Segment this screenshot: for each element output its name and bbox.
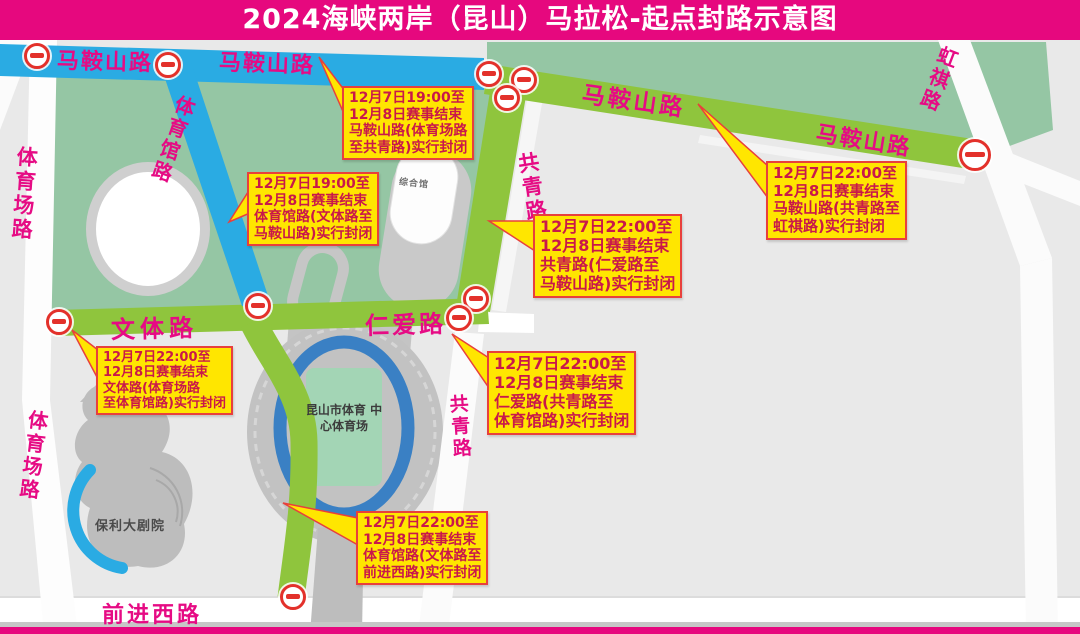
stadium-label-line1: 昆山市体育 (306, 403, 366, 417)
callout-line: 至体育馆路)实行封闭 (103, 396, 226, 411)
no-entry-icon (446, 305, 472, 331)
callout-line: 12月8日赛事结束 (103, 365, 226, 380)
callout-line: 12月7日19:00至 (254, 176, 372, 193)
callout-line: 12月8日赛事结束 (773, 183, 900, 201)
callout-line: 12月7日22:00至 (363, 515, 481, 532)
no-entry-icon (959, 139, 991, 171)
label-mashan-1: 马鞍山路 (57, 43, 154, 78)
stadium-label: 昆山市体育 中心体育场 (300, 403, 388, 434)
callout-line: 体育馆路)实行封闭 (494, 412, 629, 431)
callout-line: 前进西路)实行封闭 (363, 565, 481, 582)
callout-line: 虹祺路)实行封闭 (773, 218, 900, 236)
label-wenti: 文体路 (111, 308, 199, 345)
callout-mashan-west: 12月7日19:00至 12月8日赛事结束 马鞍山路(体育场路 至共青路)实行封… (342, 86, 474, 160)
callout-line: 体育馆路(文体路至 (363, 548, 481, 565)
page-title: 2024海峡两岸（昆山）马拉松-起点封路示意图 (242, 4, 837, 35)
callout-line: 马鞍山路(共青路至 (773, 200, 900, 218)
no-entry-icon (245, 293, 271, 319)
label-mashan-2: 马鞍山路 (218, 44, 315, 79)
callout-wenti: 12月7日22:00至 12月8日赛事结束 文体路(体育场路 至体育馆路)实行封… (96, 346, 233, 415)
no-entry-icon (24, 43, 50, 69)
callout-mashan-east: 12月7日22:00至 12月8日赛事结束 马鞍山路(共青路至 虹祺路)实行封闭 (766, 161, 907, 240)
label-qianjinxi: 前进西路 (102, 597, 202, 629)
callout-tiyuguan-south: 12月7日22:00至 12月8日赛事结束 体育馆路(文体路至 前进西路)实行封… (356, 511, 488, 585)
callout-line: 12月7日22:00至 (494, 355, 629, 374)
callout-tiyuguan-north: 12月7日19:00至 12月8日赛事结束 体育馆路(文体路至 马鞍山路)实行封… (247, 172, 379, 246)
callout-gongqing: 12月7日22:00至 12月8日赛事结束 共青路(仁爱路至 马鞍山路)实行封闭 (533, 214, 682, 298)
road-hongqi-south (1020, 258, 1058, 634)
callout-line: 马鞍山路)实行封闭 (254, 226, 372, 243)
park-oval-plaza (91, 167, 205, 291)
no-entry-icon (476, 61, 502, 87)
callout-line: 体育馆路(文体路至 (254, 209, 372, 226)
callout-line: 12月8日赛事结束 (349, 107, 467, 124)
callout-line: 12月7日22:00至 (540, 218, 675, 237)
callout-line: 马鞍山路(体育场路 (349, 123, 467, 140)
title-banner: 2024海峡两岸（昆山）马拉松-起点封路示意图 (0, 0, 1080, 40)
callout-line: 文体路(体育场路 (103, 381, 226, 396)
callout-line: 12月7日22:00至 (103, 350, 226, 365)
callout-line: 共青路(仁爱路至 (540, 256, 675, 275)
callout-line: 12月7日22:00至 (773, 165, 900, 183)
callout-line: 12月8日赛事结束 (540, 237, 675, 256)
no-entry-icon (280, 584, 306, 610)
road-closure-map: 2024海峡两岸（昆山）马拉松-起点封路示意图 马鞍山路 马鞍山路 马鞍山路 马… (0, 0, 1080, 634)
callout-line: 仁爱路(共青路至 (494, 393, 629, 412)
callout-line: 至共青路)实行封闭 (349, 140, 467, 157)
no-entry-icon (46, 309, 72, 335)
callout-line: 马鞍山路)实行封闭 (540, 275, 675, 294)
callout-line: 12月8日赛事结束 (494, 374, 629, 393)
no-entry-icon (155, 52, 181, 78)
callout-line: 12月7日19:00至 (349, 90, 467, 107)
callout-line: 12月8日赛事结束 (254, 193, 372, 210)
no-entry-icon (494, 85, 520, 111)
label-gongqing-2: 共青路 (444, 393, 476, 461)
callout-line: 12月8日赛事结束 (363, 532, 481, 549)
theater-label: 保利大剧院 (95, 515, 165, 534)
label-renai: 仁爱路 (365, 304, 447, 341)
callout-renai: 12月7日22:00至 12月8日赛事结束 仁爱路(共青路至 体育馆路)实行封闭 (487, 351, 636, 435)
